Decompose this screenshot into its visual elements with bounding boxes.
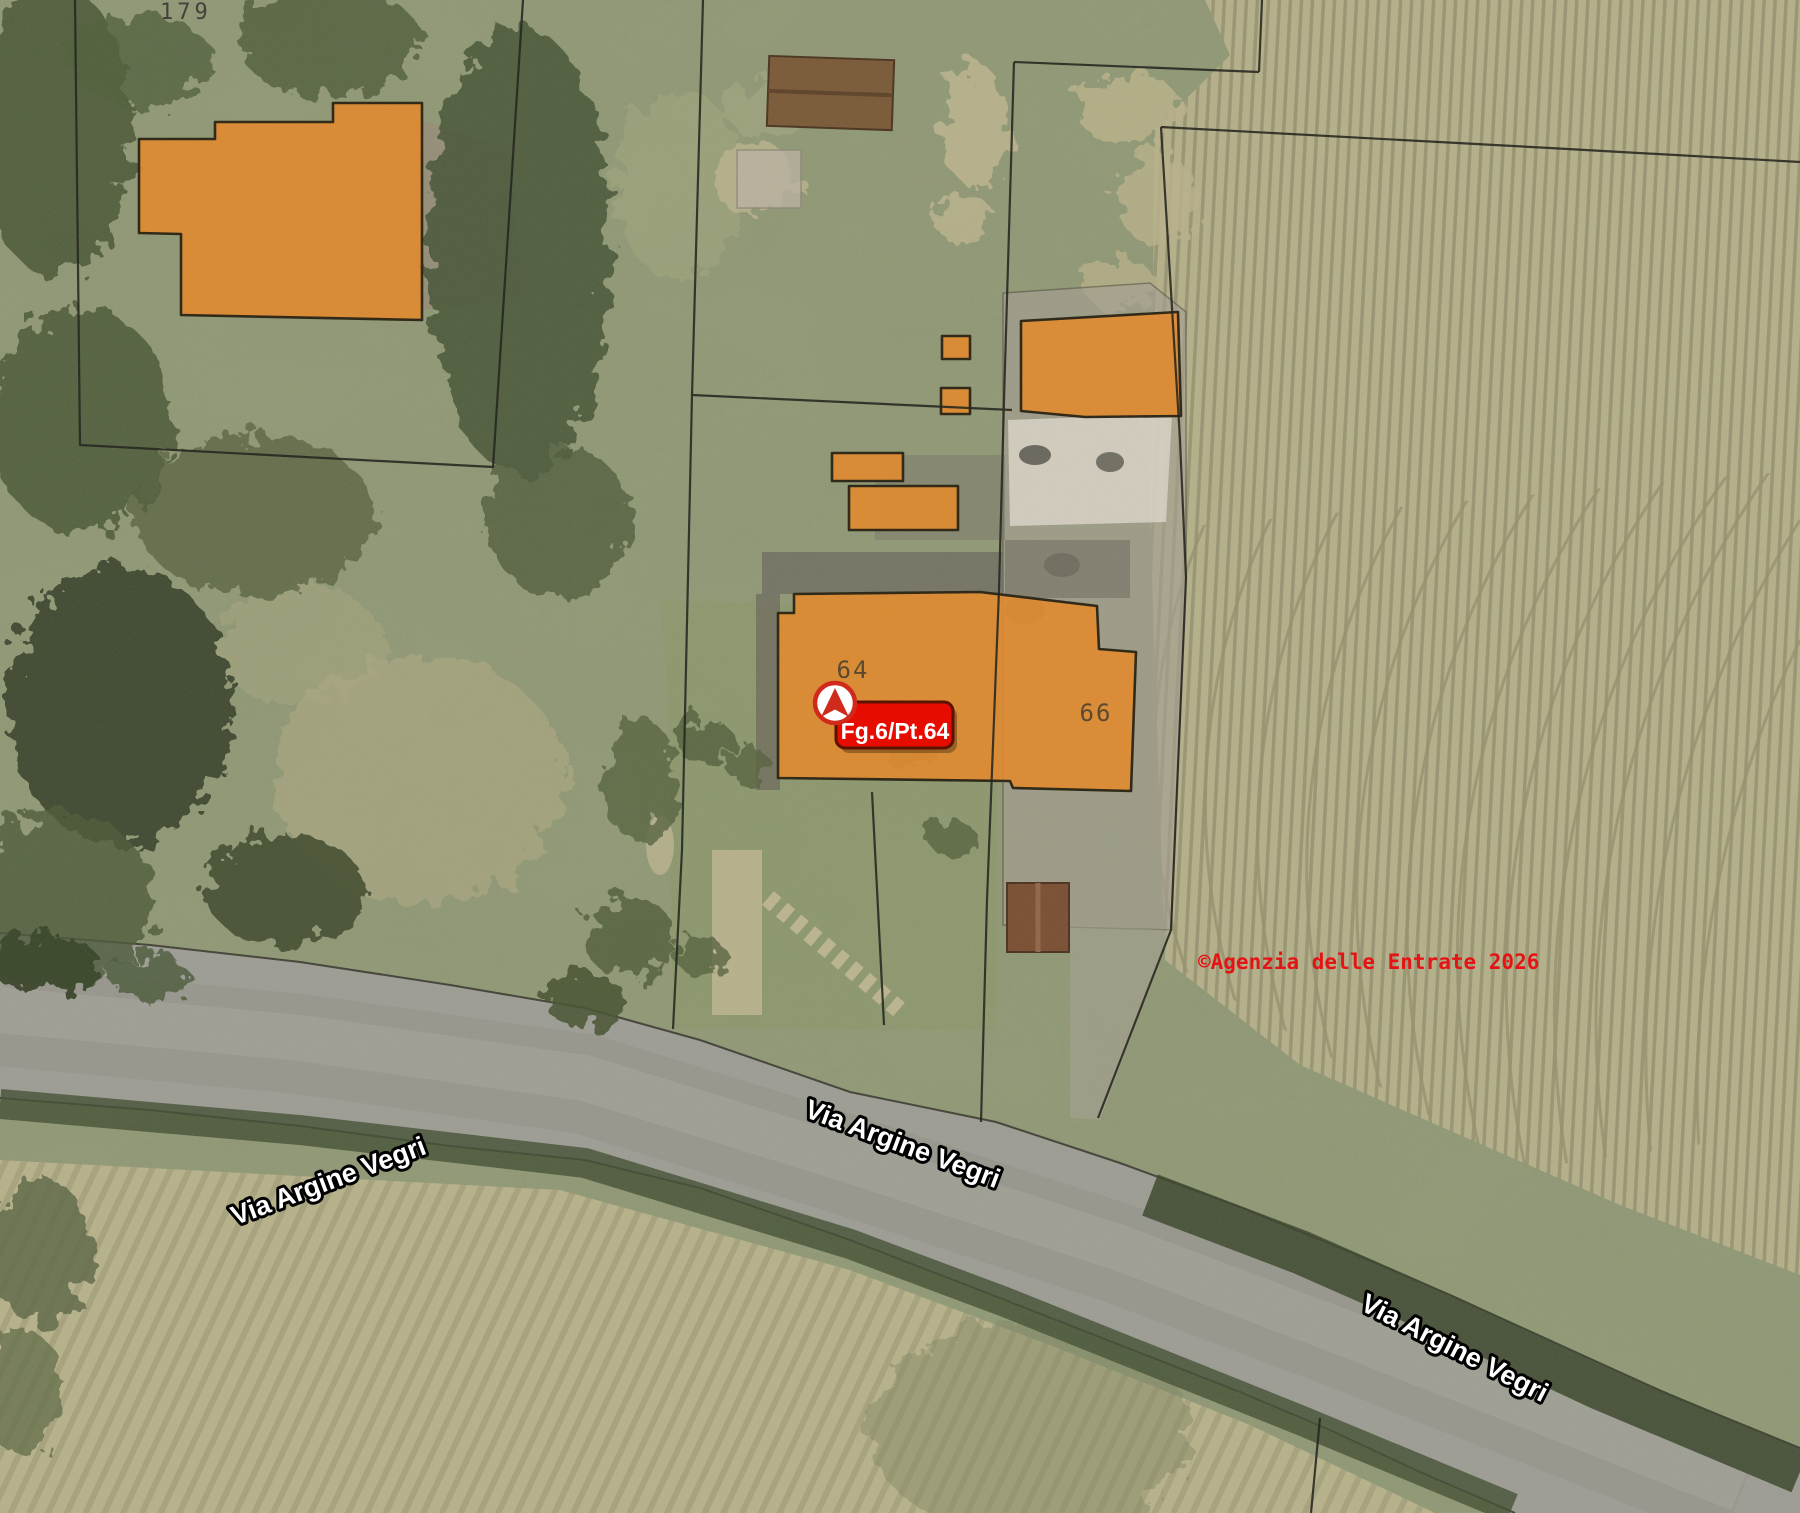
photo-grain [0,0,1800,1513]
parcel-number-66: 66 [1080,699,1113,727]
parcel-marker[interactable] [815,683,855,723]
parcel-number-179: 179 [160,0,212,25]
parcel-badge-label: Fg.6/Pt.64 [841,718,950,744]
cadastral-map[interactable]: 179 64 66 ©Agenzia delle Entrate 2026 Vi… [0,0,1800,1513]
cadastral-map-viewport[interactable]: 179 64 66 ©Agenzia delle Entrate 2026 Vi… [0,0,1800,1513]
parcel-number-64: 64 [837,656,870,684]
copyright-notice: ©Agenzia delle Entrate 2026 [1198,950,1539,974]
